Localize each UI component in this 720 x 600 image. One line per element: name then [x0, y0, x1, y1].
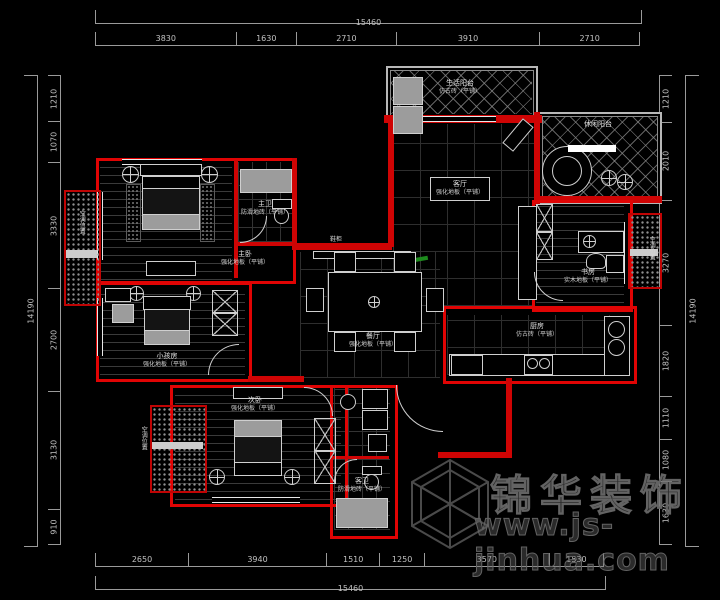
- wall: [248, 376, 304, 382]
- room-name: 休闲阳台: [584, 120, 612, 128]
- washer: [393, 106, 423, 134]
- light-icon: [209, 469, 225, 485]
- room-label-master-bath: 主卫 防滑地砖（平铺）: [238, 200, 292, 218]
- dim-value: 14190: [688, 298, 697, 323]
- dining-chair: [306, 288, 324, 312]
- annotation-text: 空调位置: [648, 236, 655, 260]
- dim-value: 1110: [662, 407, 671, 427]
- room-label-guest-bath: 客卫 防滑地砖（平铺）: [334, 477, 390, 495]
- tv-bench: [146, 261, 196, 276]
- room-name: 次卧: [248, 396, 262, 404]
- wall: [236, 242, 294, 246]
- floorplan-canvas: 15460 3830 1630 2710 3910 2710 2650 3940…: [0, 0, 720, 600]
- washer: [362, 389, 388, 409]
- bed-pillows: [234, 462, 282, 476]
- wall: [506, 378, 512, 458]
- leisure-balcony-highlight: [568, 145, 616, 152]
- ledge-hatch-left: [64, 190, 101, 306]
- dim-value: 3940: [189, 555, 326, 564]
- room-floor: 防滑地砖（平铺）: [334, 486, 390, 494]
- dim-segment: 910: [48, 509, 61, 545]
- dim-segment: 2710: [539, 32, 640, 46]
- dim-segment: 1110: [659, 396, 672, 439]
- dim-value: 1630: [237, 34, 296, 43]
- dim-value: 15460: [356, 18, 381, 27]
- dim-segment: 2700: [48, 288, 61, 390]
- dim-segment: 3330: [48, 162, 61, 288]
- shower: [240, 169, 292, 193]
- bed-runner: [144, 330, 190, 345]
- room-floor: 仿古砖（平铺）: [492, 331, 582, 339]
- annotation-text: 鞋柜: [330, 236, 342, 243]
- sofa: [518, 206, 537, 300]
- room-floor: 强化地板（平铺）: [122, 361, 212, 369]
- bed-headboard: [140, 164, 202, 176]
- room-label-guest-bed: 次卧 强化地板（平铺）: [212, 396, 298, 414]
- stool: [617, 174, 633, 190]
- room-label-living: 客厅 强化地板（平铺）: [430, 177, 490, 201]
- dim-value: 1210: [50, 88, 59, 108]
- dim-value: 1070: [50, 132, 59, 152]
- light-icon: [122, 166, 139, 183]
- wardrobe: [212, 312, 238, 336]
- window: [212, 497, 300, 503]
- room-name: 小孩房: [157, 352, 178, 360]
- dim-value: 3330: [50, 216, 59, 236]
- light-icon: [201, 166, 218, 183]
- watermark-url: www.js-jinhua.com: [474, 508, 720, 578]
- rug: [200, 184, 215, 242]
- dim-segment: 3940: [188, 553, 326, 567]
- wall: [292, 158, 297, 250]
- room-label-kids: 小孩房 强化地板（平铺）: [122, 352, 212, 370]
- dim-value: 2010: [662, 151, 671, 171]
- dim-value: 910: [50, 519, 59, 534]
- wardrobe: [314, 418, 336, 452]
- ac-label-right: 空调位置: [648, 236, 655, 260]
- room-floor: 仿古砖（平铺）: [420, 88, 500, 96]
- dim-value: 15460: [338, 584, 363, 593]
- dim-value: 3830: [96, 34, 236, 43]
- stool: [601, 170, 617, 186]
- dim-value: 2700: [50, 330, 59, 350]
- shower: [336, 498, 388, 528]
- cabinet-label: 鞋柜: [330, 236, 342, 243]
- dim-value: 2650: [96, 555, 188, 564]
- dim-segment: 3830: [95, 32, 236, 46]
- room-floor: 强化地板（平铺）: [212, 405, 298, 413]
- bookshelf: [536, 204, 553, 232]
- dim-segment: 3130: [48, 391, 61, 509]
- dim-value: 3270: [662, 253, 671, 273]
- ledge-sill: [152, 442, 203, 449]
- dining-chair: [426, 288, 444, 312]
- dim-top-chain: 3830 1630 2710 3910 2710: [95, 32, 640, 46]
- wall: [292, 243, 392, 250]
- room-name: 厨房: [530, 322, 544, 330]
- room-name: 主卧: [238, 250, 252, 258]
- sink: [608, 339, 625, 356]
- washer: [393, 77, 423, 105]
- room-label-leisure-balcony: 休闲阳台: [558, 120, 638, 129]
- room-floor: 防滑地砖（平铺）: [238, 209, 292, 217]
- window: [412, 116, 496, 122]
- room-name: 客卫: [355, 477, 369, 485]
- wardrobe: [314, 450, 336, 484]
- room-name: 餐厅: [366, 332, 380, 340]
- dim-segment: 3910: [396, 32, 540, 46]
- room-name: 主卫: [258, 200, 272, 208]
- dim-segment: 1820: [659, 325, 672, 395]
- bed-headboard: [143, 296, 191, 310]
- ac-label-bottom-left: 空调位置: [140, 426, 147, 450]
- burner: [539, 358, 550, 369]
- cabinet: [368, 434, 387, 452]
- room-floor: 强化地板（平铺）: [436, 189, 484, 197]
- room-name: 客厅: [453, 180, 467, 188]
- dim-value: 1510: [327, 555, 379, 564]
- dim-segment: 1630: [236, 32, 296, 46]
- table-center-icon: [368, 296, 380, 308]
- light-icon: [284, 469, 300, 485]
- dim-segment: 2710: [296, 32, 396, 46]
- window: [97, 298, 103, 356]
- dim-value: 1250: [380, 555, 423, 564]
- dim-value: 1210: [662, 89, 671, 109]
- room-name: 书房: [581, 268, 595, 276]
- dim-value: 14190: [26, 298, 35, 323]
- sink: [340, 394, 356, 410]
- dim-segment: 2650: [95, 553, 188, 567]
- sink: [608, 321, 625, 338]
- wall: [388, 115, 394, 247]
- ac-label-left: 空调位置: [78, 210, 85, 234]
- room-label-living-balcony: 生活阳台 仿古砖（平铺）: [420, 79, 500, 97]
- room-floor: 强化地板（平铺）: [200, 259, 290, 267]
- bed-blanket: [234, 436, 282, 464]
- annotation-text: 空调位置: [140, 426, 147, 450]
- desk-lamp-icon: [583, 235, 596, 248]
- desk-chair: [586, 253, 606, 269]
- room-floor: 实木地板（平铺）: [548, 277, 628, 285]
- dim-top-total: 15460: [95, 10, 642, 24]
- annotation-text: 空调位置: [78, 210, 85, 234]
- dim-segment: 1210: [48, 75, 61, 121]
- wall: [534, 115, 540, 205]
- rug: [126, 184, 141, 242]
- lounge-chair-inner: [552, 156, 582, 186]
- dining-chair: [394, 252, 416, 272]
- dim-left-total: 14190: [24, 75, 38, 547]
- light-icon: [129, 286, 144, 301]
- bed-runner: [142, 214, 200, 230]
- dim-bottom-total: 15460: [95, 576, 606, 590]
- washer: [362, 410, 388, 430]
- dining-chair: [334, 252, 356, 272]
- room-floor: 强化地板（平铺）: [330, 341, 416, 349]
- ledge-sill: [66, 250, 97, 258]
- ledge-hatch-bottom-left: [150, 405, 207, 493]
- dim-value: 1820: [662, 351, 671, 371]
- side-table: [112, 304, 134, 323]
- room-name: 生活阳台: [446, 79, 474, 87]
- dim-value: 3130: [50, 440, 59, 460]
- dim-left-chain: 1210 1070 3330 2700 3130 910: [48, 75, 61, 545]
- dim-segment: 1070: [48, 121, 61, 162]
- wardrobe: [212, 290, 238, 314]
- room-label-study: 书房 实木地板（平铺）: [548, 268, 628, 286]
- fridge: [451, 355, 483, 375]
- bookshelf: [536, 232, 553, 260]
- desk: [105, 288, 131, 302]
- entry-door-arc: [396, 385, 443, 432]
- dim-segment: 1510: [326, 553, 379, 567]
- room-label-dining: 餐厅 强化地板（平铺）: [330, 332, 416, 350]
- dim-value: 2710: [540, 34, 639, 43]
- room-label-kitchen: 厨房 仿古砖（平铺）: [492, 322, 582, 340]
- wall: [333, 456, 389, 459]
- burner: [527, 358, 538, 369]
- room-label-master-bed: 主卧 强化地板（平铺）: [200, 250, 290, 268]
- dim-value: 2710: [297, 34, 396, 43]
- dim-value: 3910: [397, 34, 540, 43]
